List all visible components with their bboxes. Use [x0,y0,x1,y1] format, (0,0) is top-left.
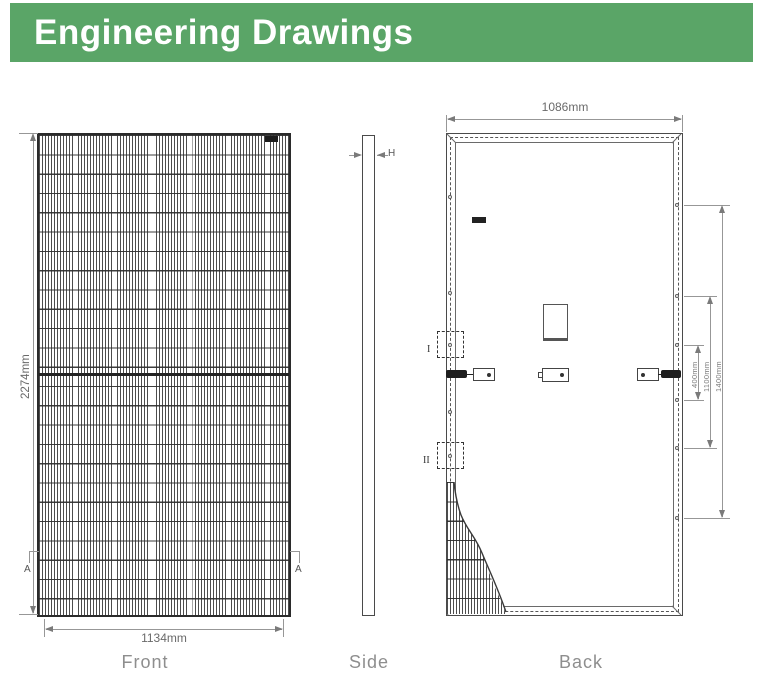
section-mark-line [299,551,300,563]
dim-ext-line [283,619,284,637]
arrow-right-icon [275,626,283,632]
connector-pin-icon [560,373,564,377]
back-view-label: Back [531,652,631,673]
front-width-dim: 1134mm [104,631,224,645]
cable-plug-right [661,370,681,378]
front-label-sticker [265,136,278,142]
mounting-hole [675,343,679,347]
arrow-down-icon [707,440,713,448]
cable-plug-left [446,370,467,378]
mount-dim-inner: 400mm [690,361,699,388]
detail-marker-1: I [427,344,430,355]
mounting-hole [675,294,679,298]
side-view-label: Side [334,652,404,673]
front-view-panel [37,133,291,617]
arrow-up-icon [719,205,725,213]
mounting-hole [448,343,452,347]
connector-left [473,368,495,381]
page-title: Engineering Drawings [10,13,414,53]
section-marker-a-right: A [295,564,302,575]
section-mark-line [29,551,39,552]
dim-line-width [448,119,681,120]
side-thickness-label: H [388,148,395,159]
dim-ext-line [684,448,717,449]
section-mark-line [29,551,30,563]
front-height-dim: 2274mm [20,354,32,399]
mounting-hole [448,454,452,458]
mounting-hole [675,516,679,520]
dim-ext-line [19,614,38,615]
dim-ext-line [684,400,704,401]
cutaway-curve [447,482,507,614]
connector-pin-icon [641,373,645,377]
arrow-right-icon [674,116,682,122]
back-width-dim: 1086mm [515,100,615,114]
detail-marker-2: II [423,455,430,466]
engineering-drawings-page: Engineering Drawings 2274mm A A 1134mm F… [0,0,762,683]
arrow-right-icon [354,152,362,158]
connector-right [637,368,659,381]
arrow-left-icon [377,152,385,158]
arrow-down-icon [719,510,725,518]
mounting-hole [448,195,452,199]
dim-line-width [46,629,282,630]
front-center-divider [39,373,289,376]
mounting-hole [675,203,679,207]
arrow-up-icon [707,296,713,304]
mount-dim-middle: 1100mm [702,362,711,392]
arrow-up-icon [695,345,701,353]
connector-notch [538,372,543,378]
mounting-hole [448,410,452,414]
connector-pin-icon [487,373,491,377]
arrow-down-icon [30,606,36,614]
junction-box [543,304,568,341]
side-view-panel [362,135,375,616]
front-view-label: Front [95,652,195,673]
arrow-down-icon [695,392,701,400]
dim-ext-line [684,345,704,346]
arrow-left-icon [447,116,455,122]
dim-line-height [33,137,34,613]
arrow-left-icon [45,626,53,632]
section-marker-a-left: A [24,564,31,575]
mount-dim-outer: 1400mm [714,361,723,392]
mounting-hole [448,291,452,295]
mounting-hole [675,398,679,402]
arrow-up-icon [30,133,36,141]
page-header: Engineering Drawings [10,3,753,62]
mounting-hole [675,446,679,450]
dim-ext-line [684,518,730,519]
back-label-sticker [472,217,486,223]
dim-ext-line [682,115,683,132]
connector-middle [542,368,569,382]
